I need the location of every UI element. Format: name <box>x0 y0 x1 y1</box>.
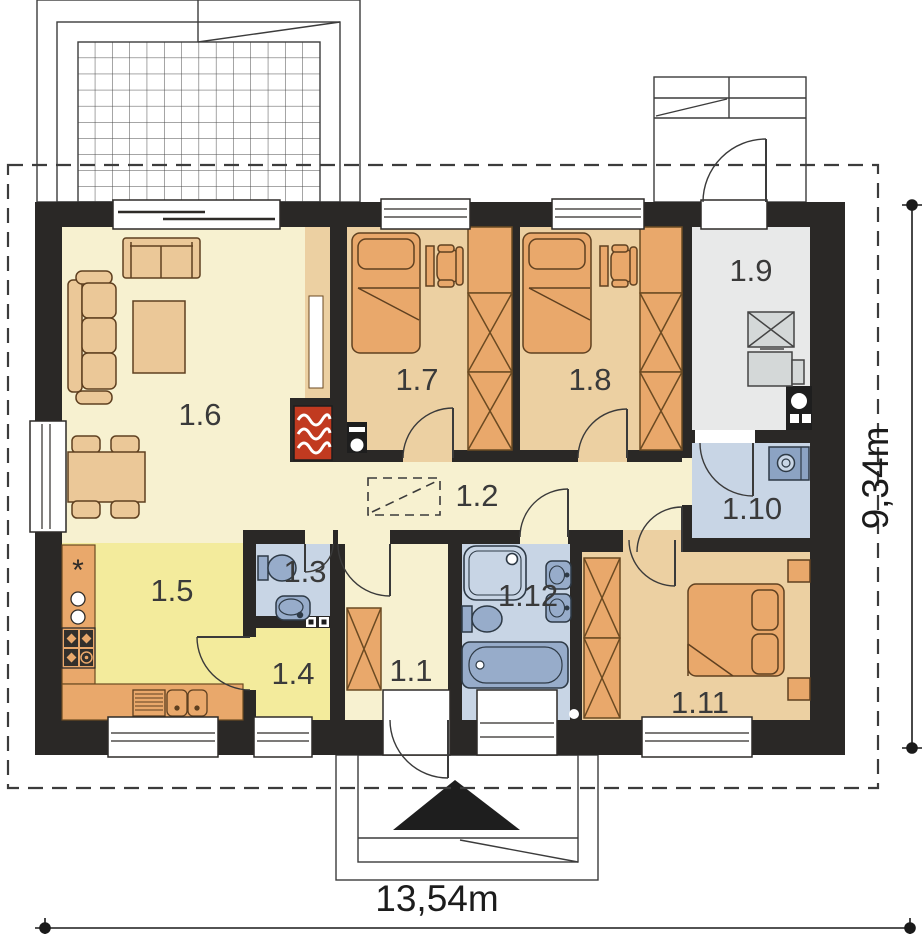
double-bed <box>688 584 784 676</box>
room-label-1-5: 1.5 <box>150 573 193 608</box>
bedroom2-window <box>552 199 644 229</box>
wc-door-opening <box>305 530 333 544</box>
flue-vent-slot <box>349 427 365 432</box>
dining-table <box>68 452 145 502</box>
single-bed <box>352 233 420 353</box>
chimney-vent-1 <box>790 414 799 423</box>
boiler-group <box>769 447 809 480</box>
master-vestibule-floor <box>623 530 682 554</box>
dimension-bottom <box>35 918 915 934</box>
kitchen-sink-icon <box>133 690 207 716</box>
bedroom1-door-opening <box>403 450 452 462</box>
vent-box-1-core <box>309 620 314 625</box>
room-label-1-10: 1.10 <box>722 491 782 526</box>
pantry-door-opening <box>243 637 256 690</box>
pantry-window <box>254 717 312 757</box>
room-label-1-9: 1.9 <box>729 253 772 288</box>
room-label-1-8: 1.8 <box>568 362 611 397</box>
fridge-star-symbol: * <box>72 554 84 587</box>
desk-chair <box>437 245 463 287</box>
desk <box>600 246 608 286</box>
room-label-1-6: 1.6 <box>178 397 221 432</box>
bathroom-wall-dot <box>569 709 579 719</box>
single-bed <box>523 233 591 353</box>
stove-icon <box>62 628 95 668</box>
hob-circle-2 <box>71 610 85 624</box>
room-label-1-12: 1.12 <box>498 578 558 613</box>
width-dimension-label: 13,54m <box>375 878 498 919</box>
dryer-icon <box>748 352 792 386</box>
boiler-room-door-opening <box>682 458 692 505</box>
desk-chair <box>611 245 637 287</box>
room-label-1-11: 1.11 <box>671 685 729 720</box>
sofa-three-seat <box>68 271 116 404</box>
entry-porch-diagonal <box>460 840 578 862</box>
dining-chair <box>72 501 100 518</box>
height-dimension-label: 9,34m <box>855 427 896 530</box>
floor-plan-canvas: * <box>0 0 924 934</box>
wardrobe-icon <box>640 227 682 293</box>
nightstand <box>788 560 810 582</box>
hallway-door-opening <box>338 530 390 544</box>
bathroom-door-opening <box>520 530 568 544</box>
entry-door-opening <box>383 690 450 755</box>
room-label-1-1: 1.1 <box>389 653 432 688</box>
bedroom2-door-opening <box>578 450 627 462</box>
dimension-right <box>902 200 922 753</box>
terrace <box>37 0 360 202</box>
terrace-diagonal-line <box>198 22 340 42</box>
vent-box-2-core <box>322 620 327 625</box>
nightstand <box>788 678 810 700</box>
side-porch-slab <box>654 77 806 202</box>
bathtub-icon <box>462 642 568 688</box>
entry-porch <box>336 755 598 880</box>
sofa-two-seat <box>123 238 200 278</box>
flue-circle <box>351 439 364 452</box>
appliance-duct <box>792 360 804 384</box>
dining-chair <box>72 436 100 453</box>
desk <box>426 246 434 286</box>
boiler-door-circle <box>778 455 795 472</box>
bathroom-window <box>477 690 557 755</box>
chimney-flue-circle <box>791 393 807 409</box>
pocket-door-slot <box>309 296 323 388</box>
living-side-window <box>30 421 66 532</box>
dining-chair <box>111 501 139 518</box>
side-porch <box>654 77 806 202</box>
utility-chimney <box>786 386 812 430</box>
utility-boiler-door-opening <box>695 430 755 443</box>
room-label-1-7: 1.7 <box>395 362 438 397</box>
bedroom1-window <box>381 199 470 229</box>
washing-machine-icon <box>748 312 794 349</box>
room-label-1-3: 1.3 <box>283 554 326 589</box>
room-label-1-4: 1.4 <box>271 656 314 691</box>
corridor-floor <box>330 462 682 530</box>
wardrobe-icon <box>468 227 512 293</box>
toilet-icon <box>462 606 502 632</box>
room-label-1-2: 1.2 <box>455 478 498 513</box>
kitchen-window <box>108 717 218 757</box>
terrace-slider-window <box>113 200 280 229</box>
chimney-vent-2 <box>802 414 811 423</box>
coffee-table <box>133 301 185 373</box>
terrace-decking-grid <box>78 42 320 202</box>
hob-circle-1 <box>71 592 85 606</box>
master-window <box>642 717 752 757</box>
dining-chair <box>111 436 139 453</box>
floor-plan-page: * <box>0 0 924 934</box>
sink-icon <box>276 596 310 620</box>
utility-entry-door-opening <box>701 200 767 229</box>
